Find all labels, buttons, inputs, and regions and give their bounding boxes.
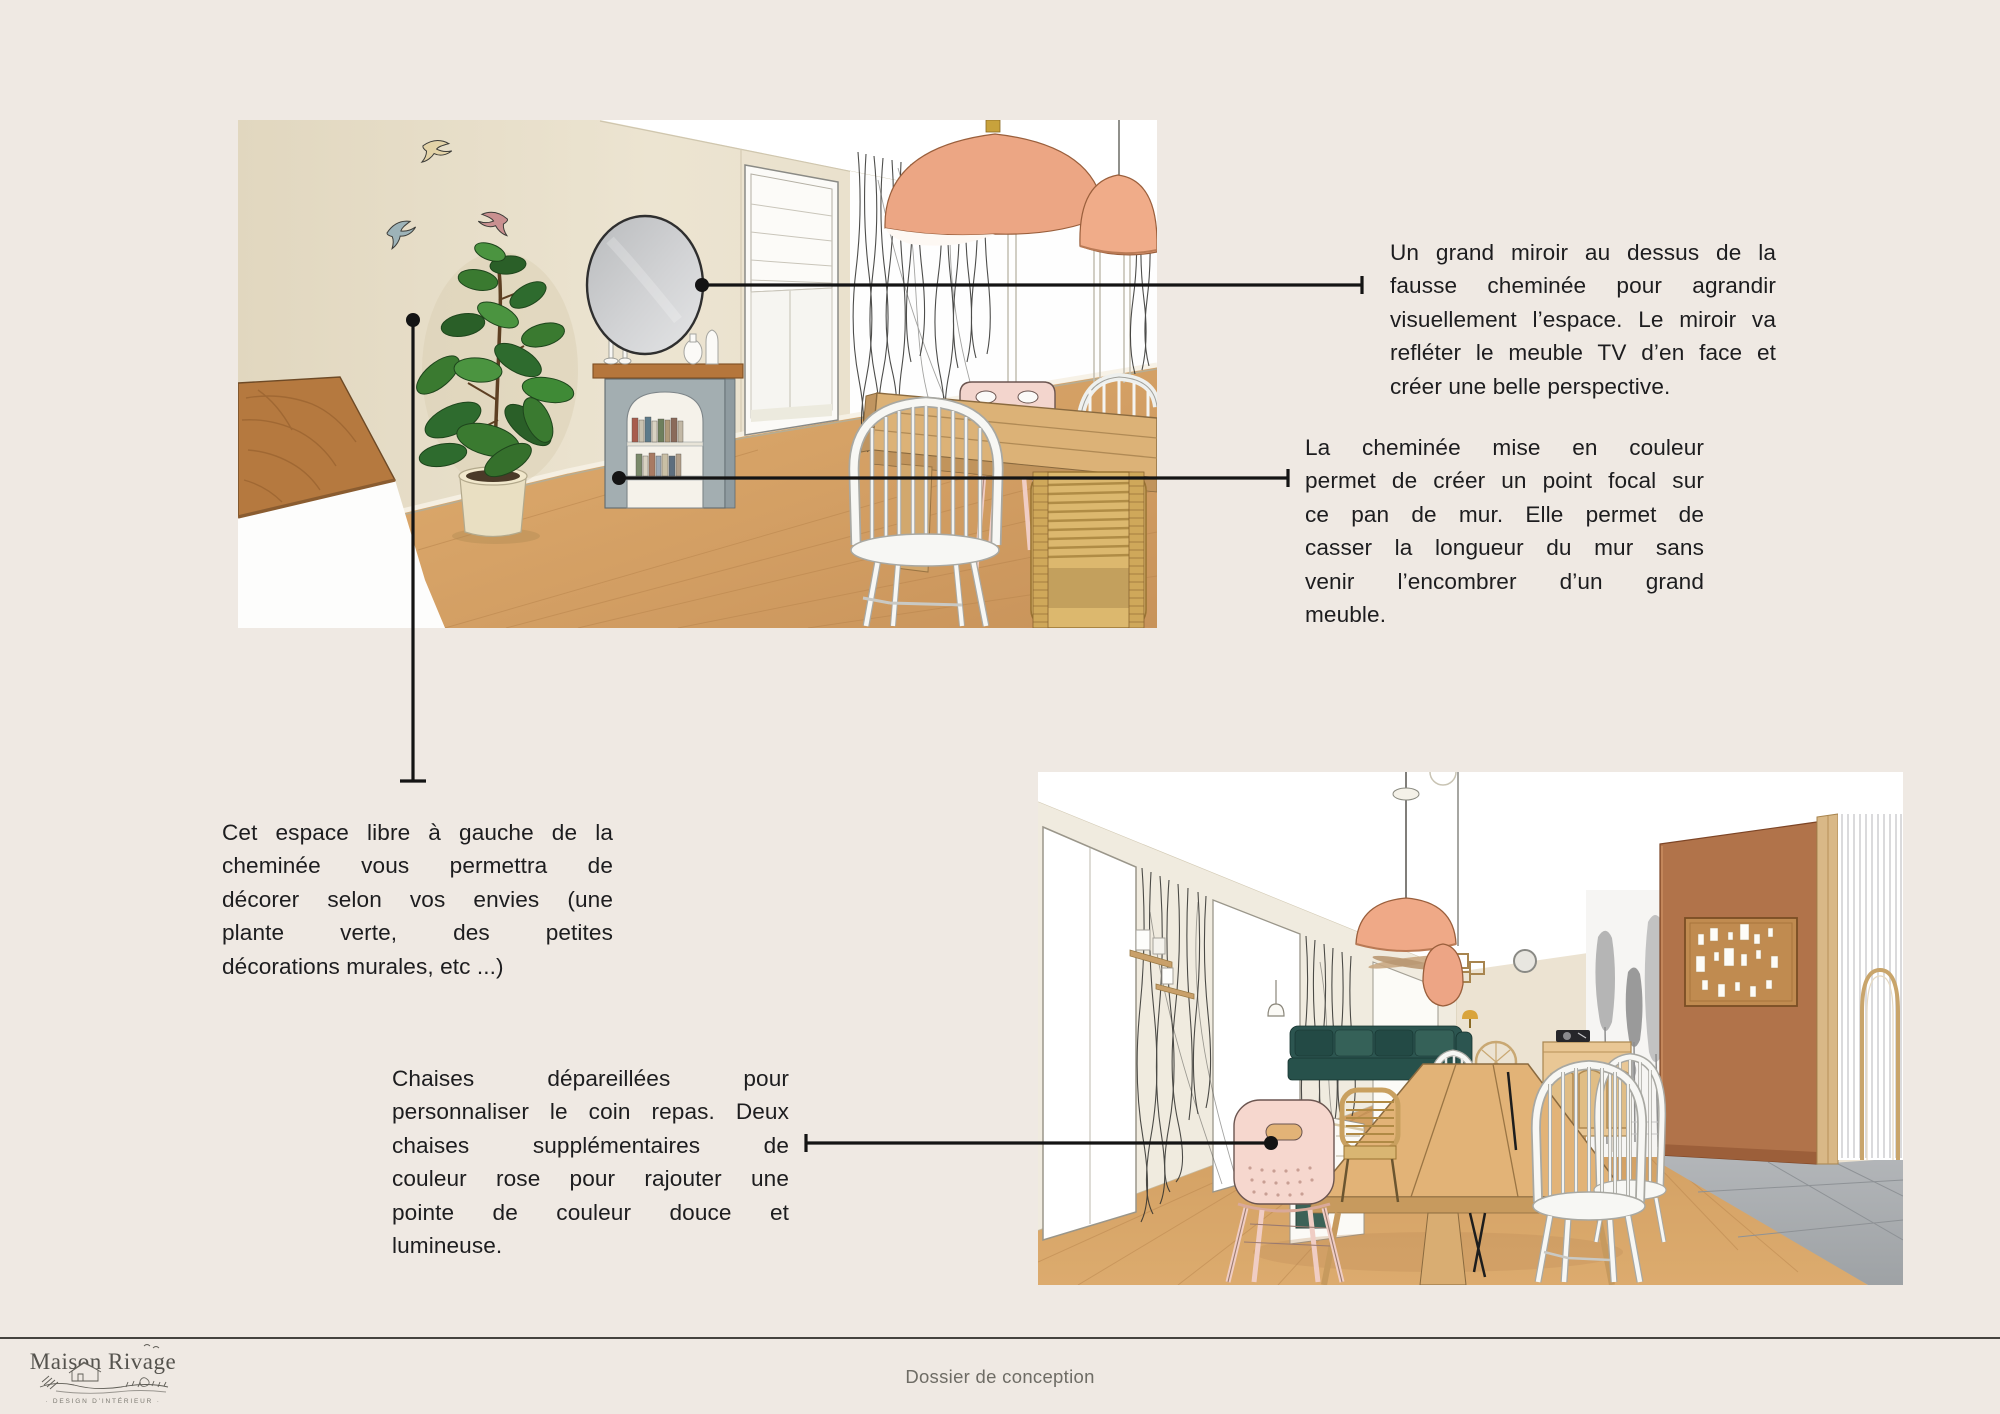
render-living-dining-view: [1038, 772, 1903, 1285]
cork-pinboard: [1685, 918, 1797, 1006]
annotation-mirror: Un grand miroir au dessus de lafausse ch…: [1390, 236, 1776, 403]
rattan-chair: [1031, 472, 1146, 628]
terracotta-wall: [1660, 822, 1817, 1164]
annotation-chairs: Chaises dépareillées pourpersonnaliser l…: [392, 1062, 789, 1262]
french-door-roman-blind: [745, 165, 838, 435]
wall-mirror: [1514, 950, 1536, 972]
brand-tagline: · DESIGN D’INTÉRIEUR ·: [45, 1396, 160, 1405]
render-dining-room-fireplace-view: [238, 120, 1157, 628]
design-dossier-page: Un grand miroir au dessus de lafausse ch…: [0, 0, 2000, 1414]
mantel-shelf: [593, 364, 743, 378]
document-title: Dossier de conception: [0, 1366, 2000, 1388]
footer-divider: [0, 1337, 2000, 1339]
doorway-and-sheer: [1817, 812, 1903, 1164]
record-player: [1556, 1030, 1590, 1042]
annotation-fireplace: La cheminée mise en couleurpermet de cré…: [1305, 431, 1704, 631]
round-mirror: [587, 216, 703, 354]
annotation-free-space: Cet espace libre à gauche de lacheminée …: [222, 816, 613, 983]
